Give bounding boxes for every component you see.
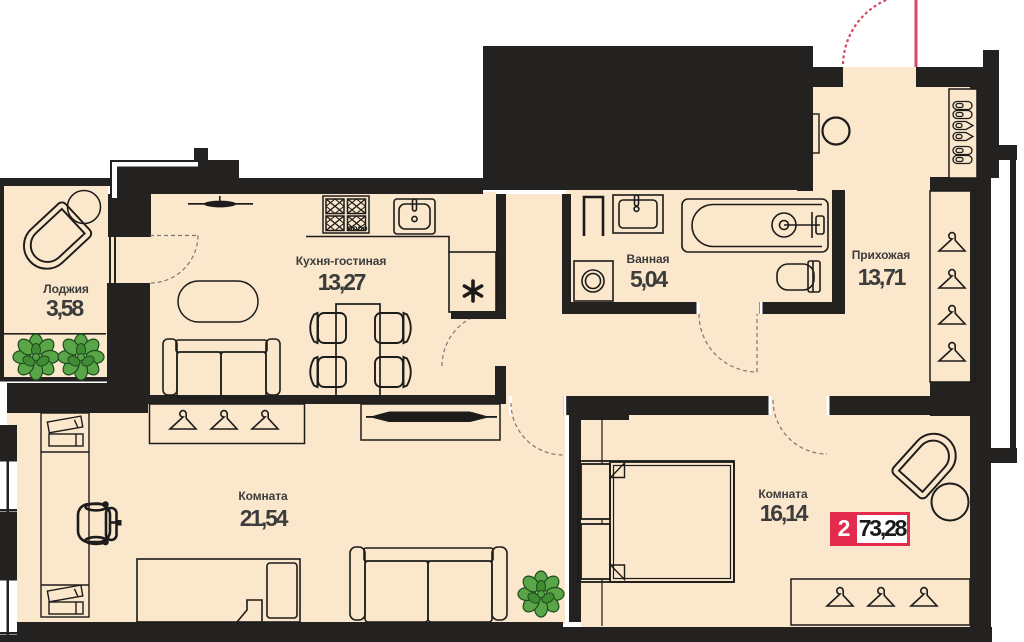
svg-text:3,58: 3,58 [46,295,84,321]
svg-text:Лоджия: Лоджия [43,282,89,296]
svg-text:21,54: 21,54 [240,505,289,531]
svg-text:73,28: 73,28 [859,515,908,541]
svg-text:Ванная: Ванная [627,252,670,266]
svg-text:Комната: Комната [238,489,288,503]
svg-text:Комната: Комната [758,487,808,501]
svg-text:13,71: 13,71 [858,264,907,290]
svg-text:13,27: 13,27 [318,269,366,295]
svg-text:Прихожая: Прихожая [852,248,911,262]
svg-text:2: 2 [838,515,851,541]
svg-text:16,14: 16,14 [760,500,809,526]
svg-text:5,04: 5,04 [630,266,668,292]
svg-text:Кухня-гостиная: Кухня-гостиная [296,254,387,268]
